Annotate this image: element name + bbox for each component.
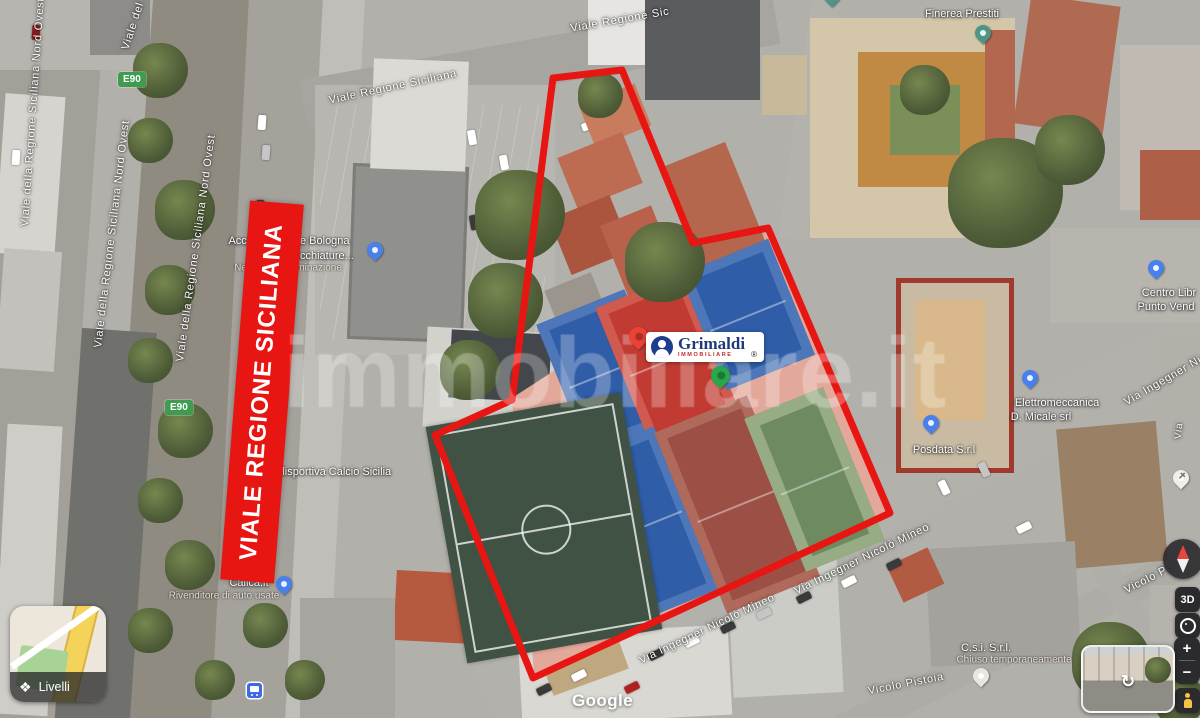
3d-button[interactable]: 3D — [1175, 587, 1200, 612]
3d-label: 3D — [1180, 594, 1194, 606]
car — [11, 150, 20, 166]
shop-pin-icon — [364, 239, 387, 262]
transit-stop-icon[interactable] — [247, 683, 262, 698]
layers-label: Livelli — [39, 680, 70, 694]
zoom-in-button[interactable]: + — [1174, 637, 1200, 660]
layers-button[interactable]: ❖ Livelli — [10, 606, 106, 702]
my-location-button[interactable] — [1175, 613, 1200, 638]
route-shield-e90: E90 — [118, 72, 146, 87]
car — [261, 145, 270, 161]
poi-pin-partial[interactable] — [824, 0, 840, 10]
pegman-icon — [1184, 693, 1192, 708]
poi-pin-elettromeccanica[interactable] — [1022, 370, 1038, 392]
zoom-out-button[interactable]: − — [1174, 661, 1200, 684]
building — [1140, 150, 1200, 220]
pin-icon — [821, 0, 844, 7]
poi-label-elettromeccanica[interactable]: Elettromeccanica — [1015, 397, 1099, 409]
poi-pin-csi[interactable] — [973, 668, 989, 690]
poi-pin-accademia[interactable] — [367, 242, 383, 264]
streetview-thumbnail[interactable]: ↻ — [1081, 645, 1175, 713]
streetview-arrow-icon: ↻ — [1121, 672, 1135, 692]
building — [347, 163, 469, 343]
agency-brand: Grimaldi — [678, 335, 745, 352]
poi-pin-calica[interactable] — [276, 576, 292, 598]
pegman-button[interactable] — [1175, 688, 1200, 713]
zoom-control[interactable]: + − — [1174, 637, 1200, 684]
road-label: Via — [1173, 422, 1186, 440]
shop-pin-icon — [1019, 367, 1042, 390]
satellite-map[interactable]: VIALE REGIONE SICILIANA immobiliare.it V… — [0, 0, 1200, 718]
layers-icon: ❖ — [19, 680, 32, 694]
poi-label-finerea[interactable]: Finerea Prestiti — [925, 8, 999, 20]
agency-marker-card[interactable]: Grimaldi IMMOBILIARE ® — [646, 332, 764, 362]
listing-pin-green[interactable] — [711, 366, 730, 392]
poi-label-csi[interactable]: C.s.i. S.r.l. — [961, 642, 1011, 654]
building — [915, 300, 985, 420]
poi-label-polisportiva[interactable]: Polisportiva Calcio Sicilia — [269, 466, 391, 478]
green-pin-icon — [707, 362, 734, 389]
poi-label-posdata[interactable]: Posdata S.r.l — [913, 444, 975, 456]
shop-pin-icon — [1145, 257, 1168, 280]
registered-mark: ® — [751, 350, 757, 359]
shop-pin-icon — [273, 573, 296, 596]
compass-button[interactable] — [1163, 539, 1200, 579]
poi-pin-posdata[interactable] — [923, 415, 939, 437]
building — [300, 598, 395, 718]
poi-label-elettromeccanica-2[interactable]: D. Micale srl — [1011, 411, 1072, 423]
google-logo[interactable]: Google — [572, 691, 633, 711]
my-location-icon — [1180, 618, 1196, 634]
poi-label-centro[interactable]: Centro Libr — [1142, 287, 1196, 299]
route-shield-e90: E90 — [165, 400, 193, 415]
tree — [1035, 115, 1105, 185]
pin-icon — [972, 22, 995, 45]
pin-icon — [970, 665, 993, 688]
poi-pin-finerea[interactable] — [975, 25, 991, 47]
poi-label-csi-sub: Chiuso temporaneamente — [956, 655, 1071, 666]
shop-pin-icon — [920, 412, 943, 435]
poi-label-centro-2[interactable]: Punto Vend — [1138, 301, 1195, 313]
road-label: Viale della Regione Siciliana Nord Ovest — [92, 119, 132, 348]
building — [762, 55, 807, 115]
layers-bar: ❖ Livelli — [10, 672, 106, 702]
grimaldi-logo-icon — [651, 336, 673, 358]
poi-label-calica-sub: Rivenditore di auto usate — [169, 591, 280, 602]
soccer-field — [426, 393, 663, 664]
car — [841, 575, 858, 589]
poi-pin-centro[interactable] — [1148, 260, 1164, 282]
building — [0, 248, 62, 372]
poi-pin-church[interactable]: ✝ — [1173, 470, 1189, 492]
car — [1016, 521, 1033, 535]
field-lines — [436, 403, 652, 653]
car — [257, 115, 266, 131]
